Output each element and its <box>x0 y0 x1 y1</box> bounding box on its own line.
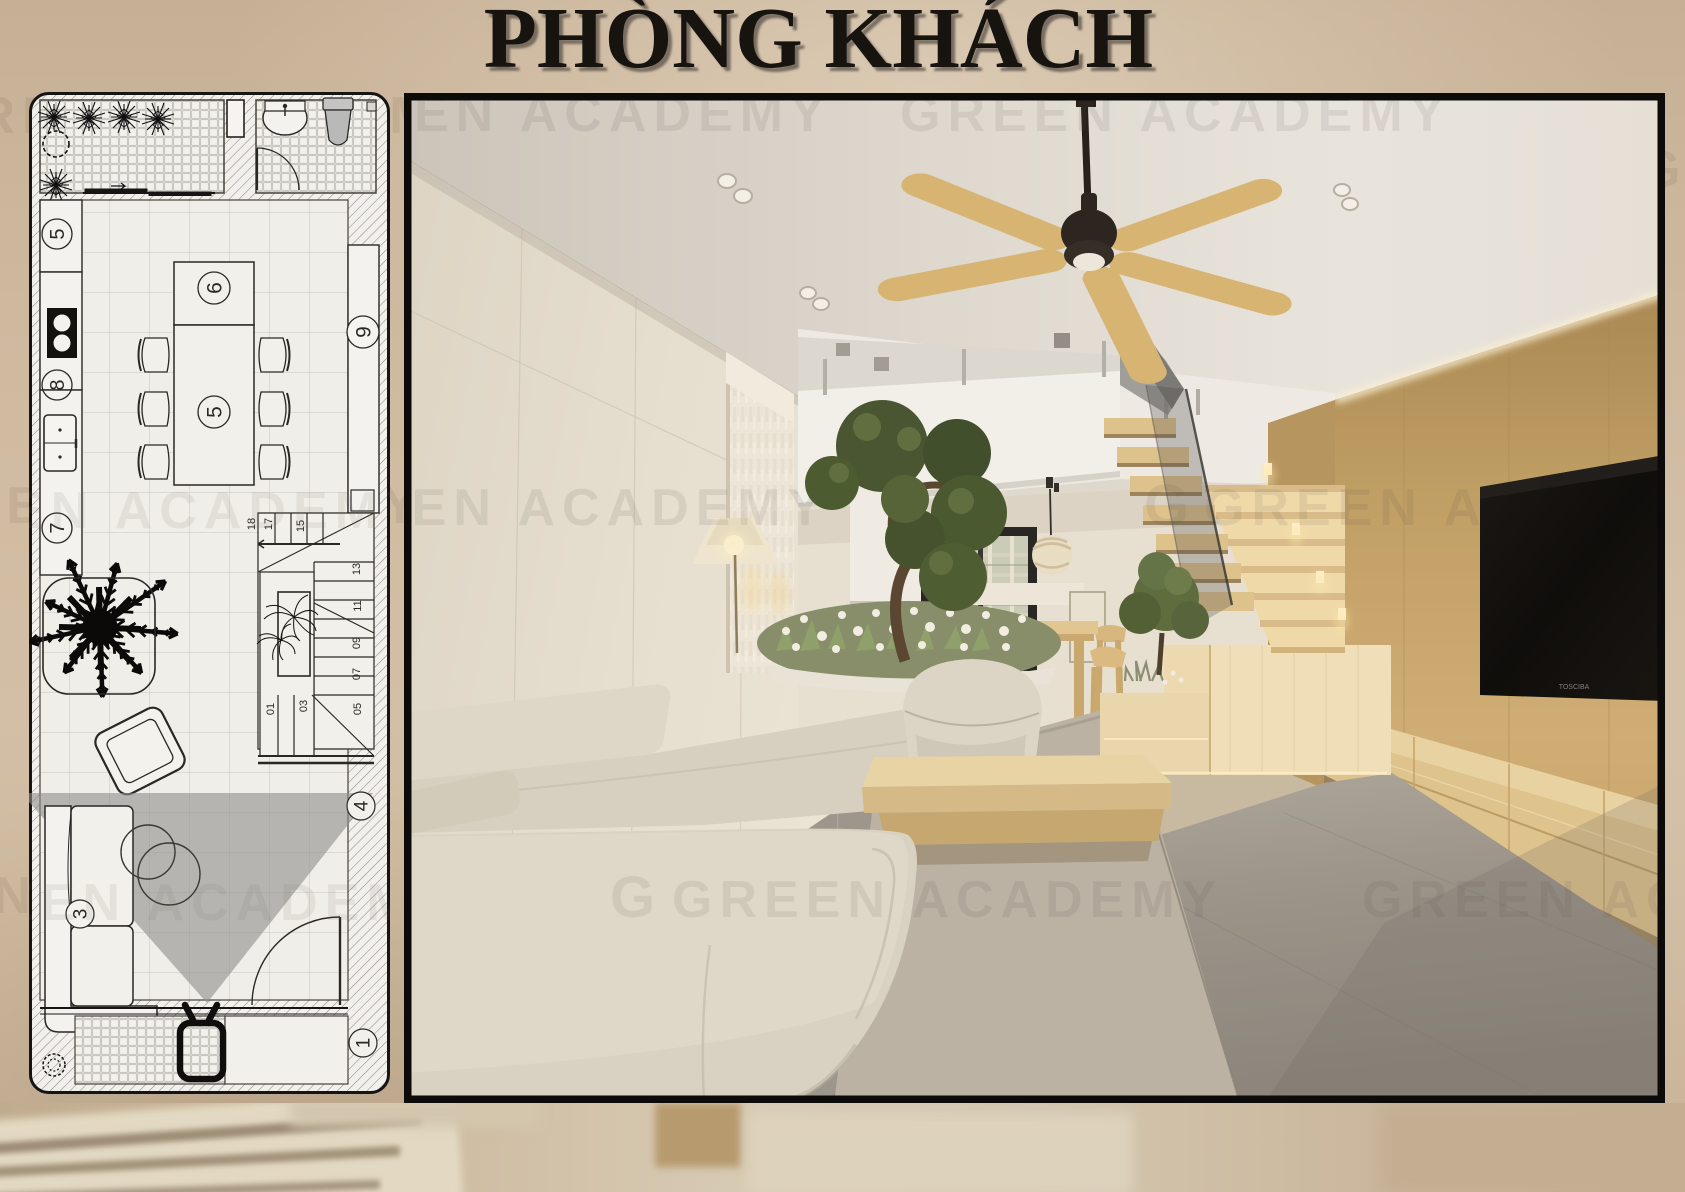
svg-text:EN ACADEMY: EN ACADEMY <box>29 482 390 540</box>
svg-text:8: 8 <box>47 379 69 390</box>
svg-text:4: 4 <box>352 800 373 811</box>
svg-text:07: 07 <box>351 668 363 680</box>
svg-text:13: 13 <box>351 563 363 575</box>
svg-text:5: 5 <box>47 228 69 239</box>
svg-text:09: 09 <box>351 637 363 649</box>
svg-text:03: 03 <box>298 700 310 712</box>
svg-text:9: 9 <box>353 326 376 338</box>
svg-text:11: 11 <box>352 600 364 611</box>
svg-text:5: 5 <box>204 406 227 418</box>
svg-text:01: 01 <box>265 703 277 715</box>
svg-text:05: 05 <box>352 703 364 715</box>
svg-text:EEN ACADEMY: EEN ACADEMY <box>29 874 390 932</box>
svg-text:1: 1 <box>354 1038 375 1049</box>
svg-text:6: 6 <box>204 282 227 294</box>
